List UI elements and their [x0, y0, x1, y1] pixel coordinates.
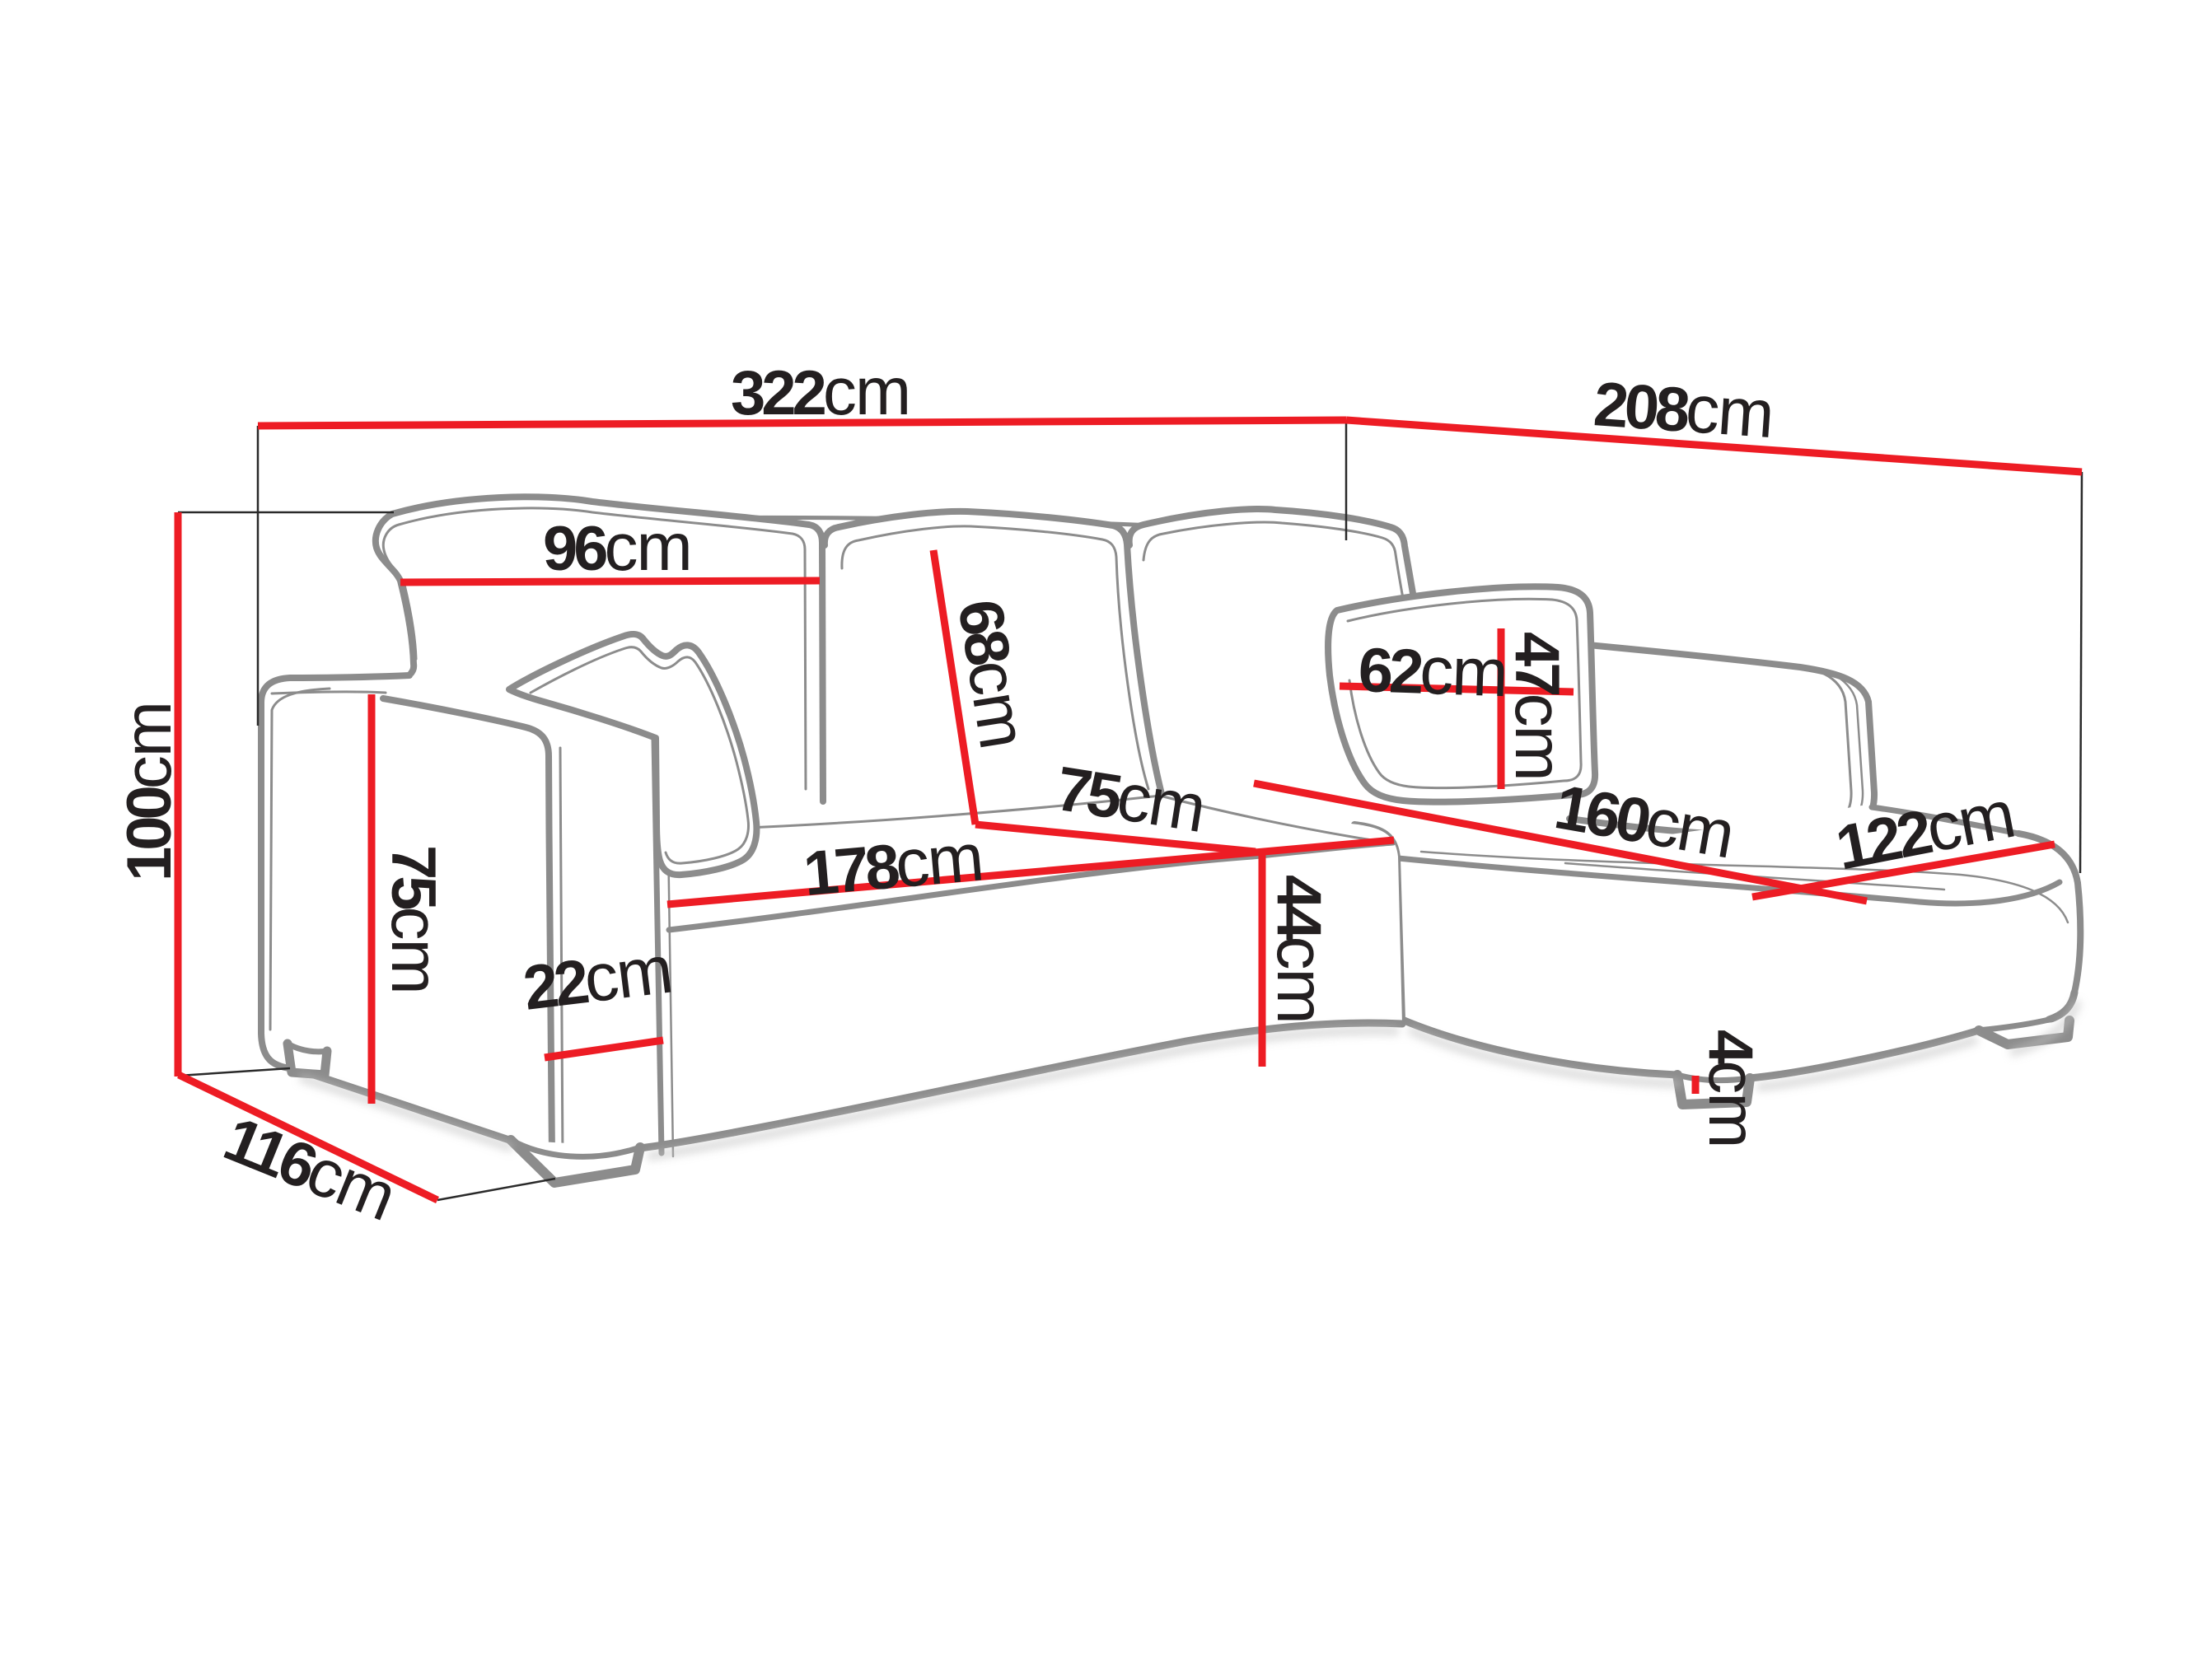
svg-text:322cm: 322cm [731, 354, 910, 429]
svg-text:4cm: 4cm [1695, 1030, 1770, 1147]
svg-text:100cm: 100cm [110, 703, 185, 881]
svg-text:96cm: 96cm [543, 510, 691, 585]
svg-text:62cm: 62cm [1357, 631, 1508, 711]
svg-text:47cm: 47cm [1501, 632, 1576, 780]
svg-text:44cm: 44cm [1263, 875, 1338, 1023]
svg-text:208cm: 208cm [1592, 365, 1775, 452]
svg-text:75cm: 75cm [377, 845, 452, 993]
